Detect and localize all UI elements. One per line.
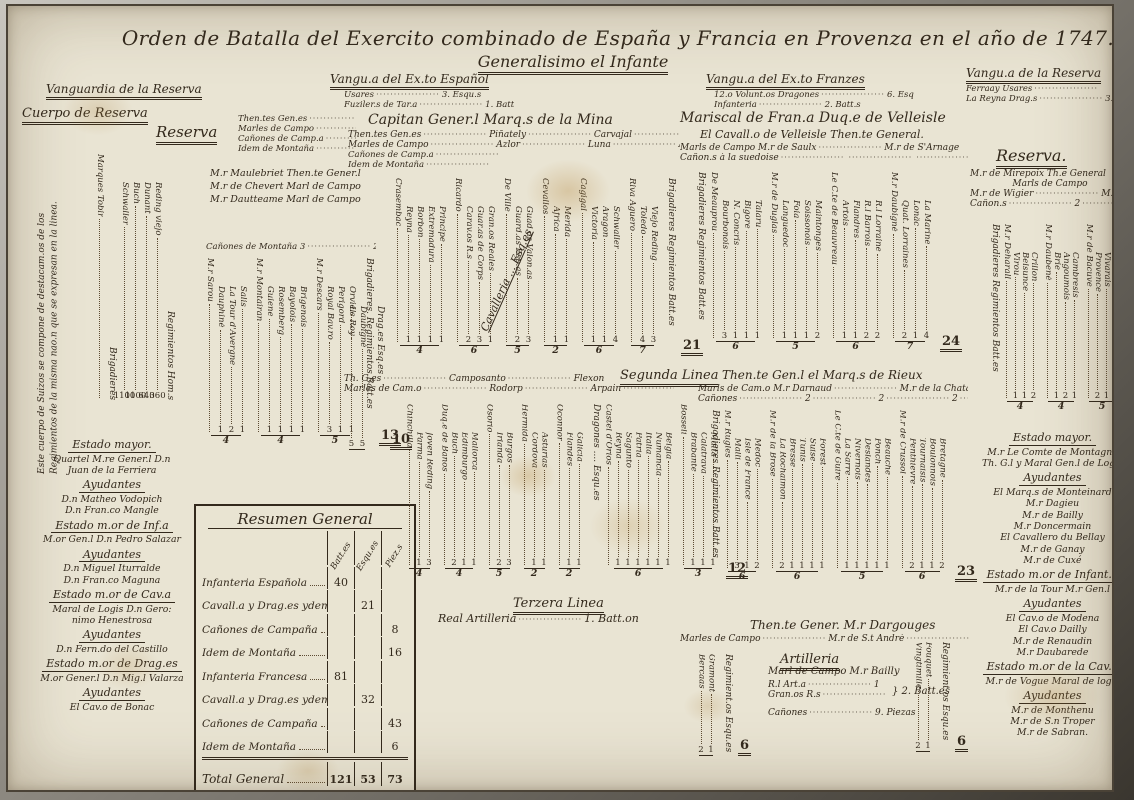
group-total: 5 xyxy=(776,341,815,352)
staff-name: M.r de Vogue Maral de logis xyxy=(970,676,1114,687)
resumen-row: Cavall.a y Drag.es ydem 21 xyxy=(202,590,408,612)
commander-name: M.r Maulebriet Then.te Gener.l xyxy=(210,168,361,181)
regiment-column: Tunis1 xyxy=(797,438,807,570)
group-total: 4 xyxy=(261,435,300,446)
commander-name: M.r Dautteame Marl de Campo xyxy=(210,194,361,207)
axis-label: Brigadieres Regimientos Batt.es xyxy=(990,224,1000,372)
capitan-general-heading: Capitan Gener.l Marq.s de la Mina xyxy=(368,112,613,128)
brigade-group: Hermida Cordova1Asturias1 2 xyxy=(519,404,549,579)
wing-swiss-reserve: Marques Tobir Brigadieres Schwaller1100B… xyxy=(94,154,177,400)
group-total: 4 xyxy=(400,345,439,356)
regiment-column: Parma1 xyxy=(414,432,424,567)
regiment-column: Quat. Lorraines2 xyxy=(899,200,910,340)
brigade-group: Crasembac Reyna1Borbon1Extremadura1Princ… xyxy=(392,178,447,356)
regiment-column: Talaru1 xyxy=(752,200,763,340)
regiment-column: Schwaller4 xyxy=(610,206,621,344)
brigade-group: Cagigal Victoria1Aragon1Schwaller4 6 xyxy=(577,178,621,356)
staff-name: M.r de Ganay xyxy=(970,544,1114,555)
estado-section: Estado m.or de Cav.a Maral de Logis D.n … xyxy=(26,589,198,626)
regiment-column: Lonäc1 xyxy=(910,200,921,340)
staff-name: El Cav.o de Modena xyxy=(970,613,1114,624)
resumen-row: Infanteria Francesa 81 xyxy=(202,661,408,683)
canones-row: Cañon.s222 xyxy=(970,199,1114,209)
group-total: 6 xyxy=(728,571,756,582)
real-artilleria-row: Real Artilleria1. Batt.on xyxy=(438,612,688,625)
regiment-column: Dauphiné1 xyxy=(215,286,226,434)
staff-name: M.or Gen.l D.n Pedro Salazar xyxy=(26,534,198,545)
left-commanders: M.r Maulebriet Then.te Gener.lM.r de Che… xyxy=(210,168,361,206)
marshals-row: M.r de WigierM.r de Pulpu xyxy=(970,189,1114,199)
estado-mayor-left: Estado mayor. Quartel M.re Gener.l D.nJu… xyxy=(26,438,198,716)
vanguard-french-line1: 12.o Volunt.os Dragones6. Esqu.s xyxy=(714,90,914,100)
staff-name: D.n Fran.co Maguna xyxy=(26,575,198,586)
regiment-column: Reding viejo360 xyxy=(152,182,163,400)
canones-montana-row: Cañones de Montaña 3222 xyxy=(206,242,376,252)
estado-heading: Estado mayor. xyxy=(1009,432,1096,446)
regiment-column: Crillon2 xyxy=(1029,252,1038,400)
staff-name: M.r de Sabran. xyxy=(970,727,1114,738)
group-total: 2 xyxy=(559,568,580,579)
regiment-column: Aragon1 xyxy=(599,206,610,344)
estado-heading: Ayudantes xyxy=(79,479,145,493)
regiment-column: Extremadura1 xyxy=(425,206,436,344)
vanguard-reserva-left-heading: Vanguardia de la Reserva xyxy=(46,78,202,100)
group-total: 6 xyxy=(905,571,940,582)
cavallo-velleisle-line: El Cavall.o de Velleisle Then.te General… xyxy=(700,128,924,141)
staff-name: nimo Henestrosa xyxy=(26,615,198,626)
document-title: Orden de Batalla del Exercito combinado … xyxy=(118,26,1114,50)
regiment-column: Guad.as Valon.as3 xyxy=(523,206,534,344)
resumen-row: Cavall.a y Drag.es ydem 32 xyxy=(202,684,408,706)
regiment-column: Guiene1 xyxy=(264,286,275,434)
axis-label: Brigadieres Regimientos Batt.es xyxy=(666,178,676,326)
vanguard-french-line2: Infanteria2. Batt.s xyxy=(714,100,914,110)
brigade-group: M.r Montairan Guiene1Rosemberg1Bayolois1… xyxy=(253,258,308,446)
regiment-column: Rosemberg1 xyxy=(275,286,286,434)
wing-total: 6 xyxy=(738,738,751,756)
resumen-title: Resumen General xyxy=(208,510,402,529)
regiment-column: Salis1 xyxy=(237,286,248,434)
regiment-column: Patria1 xyxy=(633,432,643,567)
regiment-column: Malli3 xyxy=(732,438,742,570)
staff-name: Maral de Logis D.n Gero: xyxy=(26,604,198,615)
regiment-column: Bercaas2 xyxy=(696,654,706,754)
document-sheet: Orden de Batalla del Exercito combinado … xyxy=(6,4,1114,792)
brigade-group: Duq.e de Baños Buch2Edimburgo1Mallorca1 … xyxy=(439,404,479,579)
regiment-column: Brabante1 xyxy=(688,432,698,567)
brigade-group: Riva Aguero Toledo4Viejo Reding3 7 xyxy=(626,178,659,356)
estado-heading: Ayudantes xyxy=(79,549,145,563)
canones-row: Cañones2222 xyxy=(698,394,968,404)
brigadier-column: M.r de Crussol xyxy=(897,410,907,570)
marshals-row: Marles de CampoAzlorLunaAhumada xyxy=(348,140,680,150)
staff-name: M.r de Cuxé xyxy=(970,555,1114,566)
regiment-column: Flandes1 xyxy=(564,432,574,567)
staff-name: El Cav.o de Bonac xyxy=(26,702,198,713)
vanguard-right-line1: Ferraay Usares xyxy=(966,84,1114,94)
group-total: 6 xyxy=(584,345,615,356)
regiment-column: Bresse1 xyxy=(787,438,797,570)
regiment-column: Bigore1 xyxy=(741,200,752,340)
regiment-column: Provence2 xyxy=(1093,252,1102,400)
brigadier-column: Castel d'Orios xyxy=(603,404,613,567)
rieux-heading: Then.te Gen.l el Marq.s de Rieux xyxy=(722,368,922,382)
regiment-column: Toledo4 xyxy=(637,206,648,344)
brigade-group: M.r Deharall Virou1Belsunce1Crillon2 4 xyxy=(1002,224,1038,412)
dargouges-heading: Then.te Gener. M.r Dargouges xyxy=(750,618,935,632)
axis-regimientos-hombres: Regimientos Hom.s xyxy=(165,311,175,400)
regiment-column: La Marine4 xyxy=(921,200,932,340)
brigade-group: M.r Rugles Malli3Isle de France1Medoc2 6 xyxy=(722,410,762,582)
regiment-column: Foia1 xyxy=(790,200,801,340)
group-total: 5 xyxy=(841,571,883,582)
regiment-column: Belsunce1 xyxy=(1020,252,1029,400)
staff-name: M.r de Monthenu xyxy=(970,705,1114,716)
regiment-column: Burgos3 xyxy=(504,432,514,567)
vanguard-reserva-right: Vangu.a de la Reserva Ferraay Usares La … xyxy=(966,62,1114,104)
regiment-column: Joven Reding3 xyxy=(424,432,434,567)
regiment-column: Sagunto1 xyxy=(623,432,633,567)
brigadier-column: Chinchilla xyxy=(404,404,414,567)
estado-section: Estado mayor. M.r Le Comte de MontagneTh… xyxy=(970,432,1114,469)
regiment-column: Bayolois1 xyxy=(286,286,297,434)
regiment-column: R.l Lorraine2 xyxy=(872,200,883,340)
regiment-column: Principe1 xyxy=(436,206,447,344)
cuerpo-de-reserva-heading: Cuerpo de Reserva xyxy=(22,102,148,125)
axis-label: Regimient.os Esqu.es xyxy=(940,642,950,740)
estado-heading: Estado mayor. xyxy=(68,439,155,453)
regiment-column: Forest1 xyxy=(817,438,827,570)
regiment-column: Victoria1 xyxy=(588,206,599,344)
regiment-column: Boulonnois1 xyxy=(927,438,937,570)
regiment-column: Borbon1 xyxy=(414,206,425,344)
brigadier-column: M.r de la Brose xyxy=(767,410,777,570)
brigadier-column: M.r Rugles xyxy=(722,410,732,570)
group-total: 7 xyxy=(631,345,654,356)
staff-row: Marles de Campo xyxy=(238,124,356,134)
regiment-column: Gramont1 xyxy=(706,654,716,754)
regiment-column: Nivernois1 xyxy=(852,438,862,570)
resumen-row: Cañones de Campaña 43 xyxy=(202,708,408,730)
regiment-column: La Tour d'Avergne2 xyxy=(226,286,237,434)
wing-french-line1: Brigadieres Regimientos Batt.es De Meaup… xyxy=(694,172,962,352)
staff-name: D.n Fern.do del Castillo xyxy=(26,644,198,655)
estado-heading: Estado m.or de Inf.a xyxy=(51,520,172,534)
estado-section: Estado m.or de Infant.a M.r de la Tour M… xyxy=(970,569,1114,595)
vanguard-spanish: Vangu.a del Ex.to Español Usares3. Esqu.… xyxy=(330,68,530,110)
regiment-column: Fouquet1 xyxy=(923,642,933,750)
estado-heading: Ayudantes xyxy=(79,629,145,643)
staff-name: D.n Fran.co Mangle xyxy=(26,505,198,516)
wing-right-reserve: Brigadieres Regimientos Batt.es M.r Deha… xyxy=(988,224,1114,412)
regiment-column: Cordova1 xyxy=(529,432,539,567)
brigade-group: Le C.te de Guire La Sarre1Nivernois1Desl… xyxy=(832,410,892,582)
resumen-header: Batt.es Esqu.es Piez.s xyxy=(202,531,408,565)
regiment-column: Vivarais1 xyxy=(1102,252,1111,400)
brigadier-column: Ricardo xyxy=(452,178,463,344)
vanguard-right-line2: La Reyna Drag.s3.4 Es. xyxy=(966,94,1114,104)
marshals-row: Marles de Cam.oRodorpArpainRegalado xyxy=(344,384,674,394)
brigade-group: M.r Sarou Dauphiné1La Tour d'Avergne2Sal… xyxy=(204,258,248,446)
group-total: 6 xyxy=(836,341,875,352)
regiment-column: Brie1 xyxy=(1052,252,1061,400)
brigadier-column: Bosseli xyxy=(678,404,688,567)
marshals-row: Marls de Cam.o M.r DarnaudM.r de la Chat… xyxy=(698,384,968,394)
regiment-column: Viejo Reding3 xyxy=(648,206,659,344)
regiment-column: Schwaller1100 xyxy=(119,182,130,400)
regiment-column: Brigenois1 xyxy=(297,286,308,434)
regiment-column: Galicia1 xyxy=(574,432,584,567)
regiment-column: Languedoc1 xyxy=(779,200,790,340)
vanguard-spanish-line2: Fuziler.s de Tar.a1. Batt.on xyxy=(344,100,514,110)
wing-total: 6 xyxy=(955,734,968,752)
regiment-column: Artois1 xyxy=(839,200,850,340)
regiment-column: Reyna1 xyxy=(613,432,623,567)
resumen-row: Infanteria Española 40 xyxy=(202,567,408,589)
group-total: 6 xyxy=(716,341,755,352)
estado-heading: Ayudantes xyxy=(79,687,145,701)
brigadier-column: M.r Daubené xyxy=(1043,224,1052,400)
wing-total: 24 xyxy=(940,334,962,352)
regiment-column: Cambresis1 xyxy=(1070,252,1079,400)
brigade-group: Osorio Irlanda2Burgos3 5 xyxy=(484,404,514,579)
regiment-column: Dunant640 xyxy=(141,182,152,400)
regiment-column: Beauche1 xyxy=(882,438,892,570)
wing-vanguard-bottom-right: Vingtimille2Fouquet1 Regimient.os Esqu.e… xyxy=(913,642,968,752)
wing-french-line2: Brigadieres Regimientos Batt.es M.r Rugl… xyxy=(708,410,977,582)
artilleria-canones-row: Cañones9. Piezas xyxy=(768,708,918,718)
canones-suedoise-row: Cañon.s à la suedoise xyxy=(680,153,970,163)
resumen-total-row: Total General 121 53 73 xyxy=(202,757,408,786)
brigade-group: Oconnor Flandes1Galicia1 2 xyxy=(554,404,584,579)
regiment-column: Merida1 xyxy=(561,206,572,344)
regiment-column: Isle de France1 xyxy=(742,438,752,570)
group-total xyxy=(349,449,364,450)
brigadier-column: Le C.te de Guire xyxy=(832,410,842,570)
staff-name: Juan de la Ferriera xyxy=(26,465,198,476)
group-total: 4 xyxy=(211,435,242,446)
staff-name: M.r Le Comte de Montagne xyxy=(970,447,1114,458)
resumen-row: Idem de Montaña 16 xyxy=(202,637,408,659)
wing-spanish-line2: Chinchilla Parma1Joven Reding3 4 Duq.e d… xyxy=(404,404,748,579)
estado-section: Ayudantes M.r de MonthenuM.r de S.n Trop… xyxy=(970,690,1114,739)
regiment-column: Bretagne2 xyxy=(937,438,947,570)
brigade-group: Castel d'Orios Reyna1Sagunto1Patria1Ital… xyxy=(603,404,673,579)
artilleria-row: Gran.os R.s1 xyxy=(768,690,888,700)
brigadier-column: M.r Montairan xyxy=(253,258,264,434)
regiment-column: Perigord1 xyxy=(335,286,346,434)
brigadier-column: M.r de Duglas xyxy=(768,172,779,340)
estado-section: Estado m.or de Drag.es M.or Gener.l D.n … xyxy=(26,658,198,684)
axis-label: Brigadieres Regimientos Batt.es xyxy=(696,172,706,320)
brigadier-column: Cevallos xyxy=(539,178,550,344)
brigade-group: M.r Daubené Brie1Angoumois2Cambresis1 4 xyxy=(1043,224,1079,412)
canones-row: Cañones de Camp.a xyxy=(348,150,598,160)
regiment-column: Irlanda2 xyxy=(494,432,504,567)
regiment-column: Numancia1 xyxy=(653,432,663,567)
regiment-column: Ponch1 xyxy=(872,438,882,570)
generals-row: Th. G.esCamposantoFlexon xyxy=(344,374,674,384)
group-total: 7 xyxy=(895,341,926,352)
marshals-row: Marls de Campo M.r de SaulxM.r de S'Arna… xyxy=(680,143,970,153)
staff-name: El Cavallero du Bellay xyxy=(970,532,1114,543)
regiment-column: Virou1 xyxy=(1011,252,1020,400)
brigadier-column: M.r Daubigné xyxy=(888,172,899,340)
group-total: 5 xyxy=(1089,401,1114,412)
axis-dragones: Dragones .... Esqu.es xyxy=(591,404,601,501)
right-reserva-staff: M.r de Mirepoix Th.e General Marls de Ca… xyxy=(970,169,1114,209)
group-total: 4 xyxy=(409,568,430,579)
staff-name: M.r de Renaudin xyxy=(970,636,1114,647)
generals-row: Then.tes Gen.esPiñatelyCarvajalCroios xyxy=(348,130,680,140)
regiment-column: Penthievre2 xyxy=(907,438,917,570)
estado-heading: Ayudantes xyxy=(1019,690,1085,704)
estado-mayor-right: Estado mayor. M.r Le Comte de MontagneTh… xyxy=(970,431,1114,742)
brigadier-column: De Meauprou xyxy=(708,172,719,340)
regiment-column: Africa1 xyxy=(550,206,561,344)
brigadier-column: Osorio xyxy=(484,404,494,567)
group-total: 2 xyxy=(544,345,567,356)
regiment-column: Flandres1 xyxy=(850,200,861,340)
estado-section: Estado m.or de Inf.a M.or Gen.l D.n Pedr… xyxy=(26,520,198,546)
regiment-column: Asturias1 xyxy=(539,432,549,567)
brigade-group: Chinchilla Parma1Joven Reding3 4 xyxy=(404,404,434,579)
rieux-staff-rows: Marls de Cam.o M.r DarnaudM.r de la Chat… xyxy=(698,384,968,404)
regiment-column: La Reyne2 xyxy=(1111,252,1114,400)
staff-name: M.or Gener.l D.n Mig.l Valarza xyxy=(26,673,198,684)
artilleria-row: R.l Art.a1 xyxy=(768,680,888,690)
staff-name: M.r de Bailly xyxy=(970,510,1114,521)
estado-section: Ayudantes El Cav.o de Bonac xyxy=(26,687,198,713)
regiment-column: Royal Bav.ro3 xyxy=(324,286,335,434)
french-staff-rows: Marls de Campo M.r de SaulxM.r de S'Arna… xyxy=(680,143,970,163)
regiment-column: La Rochaimon2 xyxy=(777,438,787,570)
staff-name: M.r Daubarede xyxy=(970,647,1114,658)
staff-name: M.r de S.n Troper xyxy=(970,716,1114,727)
brigadier-column: Hermida xyxy=(519,404,529,567)
group-total: 2 xyxy=(524,568,545,579)
regiment-column: Suise1 xyxy=(807,438,817,570)
montana-row: Idem de Montaña xyxy=(348,160,598,170)
brigade-group: Cevallos Africa1Merida1 2 xyxy=(539,178,572,356)
group-total: 6 xyxy=(614,568,663,579)
estado-section: Ayudantes El Marq.s de MonteinardM.r Dag… xyxy=(970,472,1114,566)
group-total: 6 xyxy=(459,345,490,356)
estado-heading: Estado m.or de Drag.es xyxy=(42,658,182,672)
regiment-column: Tournaisis1 xyxy=(917,438,927,570)
estado-section: Ayudantes El Cav.o de ModenaEl Cav.o Dai… xyxy=(970,598,1114,658)
group-total: 5 xyxy=(489,568,510,579)
brigadier-column: Duq.e de Baños xyxy=(439,404,449,567)
vanguard-spanish-line1: Usares3. Esqu.s xyxy=(344,90,514,100)
spanish-staff-rows: Then.tes Gen.esPiñatelyCarvajalCroios Ma… xyxy=(348,130,680,170)
regiment-column: Mallorca1 xyxy=(469,432,479,567)
brigadier-column: Le C.te de Beauvreau xyxy=(828,172,839,340)
group-total: 6 xyxy=(776,571,818,582)
regiment-column: Buch2 xyxy=(449,432,459,567)
estado-section: Ayudantes D.n Matheo VodopichD.n Fran.co… xyxy=(26,479,198,516)
regiment-column: Medoc2 xyxy=(752,438,762,570)
brigadier-column: M.r Deharall xyxy=(1002,224,1011,400)
estado-section: Ayudantes D.n Miguel IturraldeD.n Fran.c… xyxy=(26,549,198,586)
regiment-column: Deslandes1 xyxy=(862,438,872,570)
right-reserva-heading: Reserva. xyxy=(996,146,1067,169)
col-battalions: Batt.es xyxy=(327,531,354,565)
regiment-column: Belgia1 xyxy=(663,432,673,567)
resumen-row: Cañones de Campaña 8 xyxy=(202,614,408,636)
estado-section: Ayudantes D.n Fern.do del Castillo xyxy=(26,629,198,655)
swiss-units: Schwaller1100Buch1100Dunant640Reding vie… xyxy=(119,182,163,400)
brigadier-column: Marques Tobir xyxy=(94,154,105,400)
mariscal-velleisle-heading: Mariscal de Fran.a Duq.e de Velleisle xyxy=(680,110,946,126)
regiment-column: Italia1 xyxy=(643,432,653,567)
staff-name: Quartel M.re Gener.l D.n xyxy=(26,454,198,465)
brigadier-column: Cagigal xyxy=(577,178,588,344)
axis-label: Regimient.os Esqu.es xyxy=(723,654,733,752)
regiment-column: Buch1100 xyxy=(130,182,141,400)
regiment-column: Angoumois2 xyxy=(1061,252,1070,400)
brigadier-column: Oconnor xyxy=(554,404,564,567)
brigade-group: De Meauprou Bourbonois3N. Concris1Bigore… xyxy=(708,172,763,352)
brigade-group: Vingtimille2Fouquet1 xyxy=(913,642,933,752)
staff-name: M.r Doncermain xyxy=(970,521,1114,532)
estado-heading: Ayudantes xyxy=(1019,598,1085,612)
regiment-column: La Sarre1 xyxy=(842,438,852,570)
brigadier-column: Riva Aguero xyxy=(626,178,637,344)
group-total xyxy=(699,755,713,756)
brigadier-column: M.r Descars xyxy=(313,258,324,434)
brigadier-column: M.r Sarou xyxy=(204,258,215,434)
segunda-staff-rows: Th. G.esCamposantoFlexon Marles de Cam.o… xyxy=(344,374,674,394)
resumen-row: Idem de Montaña 6 xyxy=(202,731,408,753)
estado-section: Estado m.or de la Cav.a M.r de Vogue Mar… xyxy=(970,661,1114,687)
group-total: 4 xyxy=(445,568,473,579)
staff-row: Cañones de Camp.a xyxy=(238,134,356,144)
left-reserva-heading: Reserva xyxy=(156,122,217,145)
commander-name: M.r de Chevert Marl de Campo xyxy=(210,181,361,194)
staff-name: M.r de la Tour M.r Gen.l xyxy=(970,584,1114,595)
regiment-column: N. Concris1 xyxy=(730,200,741,340)
regiment-column: Vingtimille2 xyxy=(913,642,923,750)
group-total: 4 xyxy=(1007,401,1032,412)
left-staff-labels: Then.tes Gen.es Marles de Campo Cañones … xyxy=(238,114,356,154)
estado-heading: Ayudantes xyxy=(1019,472,1085,486)
estado-section: Estado mayor. Quartel M.re Gener.l D.nJu… xyxy=(26,439,198,476)
brigade-group: M.r de Crussol Penthievre2Tournaisis1Bou… xyxy=(897,410,947,582)
group-total xyxy=(916,751,930,752)
staff-name: D.n Matheo Vodopich xyxy=(26,494,198,505)
wing-spanish-line1: Crasembac Reyna1Borbon1Extremadura1Princ… xyxy=(392,178,703,356)
regiment-column: Reyna1 xyxy=(403,206,414,344)
mirepoix-line: M.r de Mirepoix Th.e General xyxy=(970,169,1114,179)
estado-heading: Estado m.or de la Cav.a xyxy=(983,661,1114,675)
brigade-group: M.r Daubigné Quat. Lorraines2Lonäc1La Ma… xyxy=(888,172,932,352)
marshals-label: Marls de Campo xyxy=(970,179,1114,189)
axis-label: Brigadieres Regimientos Batt.es xyxy=(710,410,720,558)
swiss-corps-note: Este cuerpo de Suizos se compone de dest… xyxy=(36,156,88,474)
regiment-column: Bourbonois3 xyxy=(719,200,730,340)
brigadier-column: M.r de Bacuve xyxy=(1084,224,1093,400)
group-total: 5 xyxy=(506,345,529,356)
staff-row: Then.tes Gen.es xyxy=(238,114,356,124)
bailly-line: Marl de Campo M.r Bailly xyxy=(768,666,899,677)
brigade-group: M.r de Duglas Languedoc1Foia1Soissonois1… xyxy=(768,172,823,352)
regiment-column: Carav.os R.s2 xyxy=(463,206,474,344)
resumen-general-table: Resumen General Batt.es Esqu.es Piez.s I… xyxy=(194,504,416,792)
estado-heading: Estado m.or de Infant.a xyxy=(983,569,1114,583)
staff-name: El Marq.s de Monteinard xyxy=(970,487,1114,498)
staff-name: Th. G.l y Maral Gen.l de Logis xyxy=(970,458,1114,469)
